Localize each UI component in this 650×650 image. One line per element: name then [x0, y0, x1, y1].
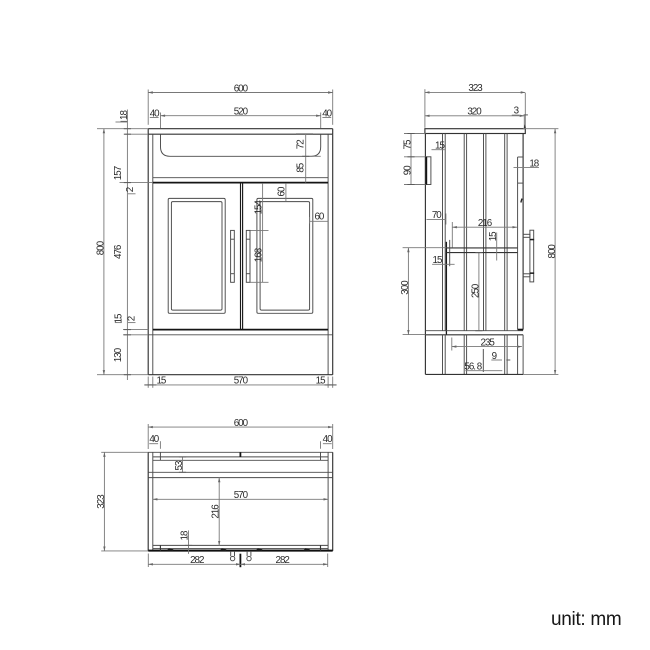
svg-text:18: 18	[179, 530, 190, 540]
svg-text:75: 75	[403, 139, 414, 149]
svg-text:90: 90	[403, 165, 414, 175]
svg-text:300: 300	[400, 280, 411, 295]
svg-text:60: 60	[314, 211, 324, 222]
svg-text:15: 15	[488, 231, 499, 241]
svg-text:520: 520	[234, 107, 249, 118]
svg-text:85: 85	[296, 162, 307, 172]
svg-text:18: 18	[529, 158, 539, 169]
svg-text:53: 53	[174, 460, 185, 470]
svg-text:154: 154	[253, 199, 264, 214]
svg-text:18: 18	[119, 110, 130, 120]
svg-text:9: 9	[492, 351, 497, 362]
svg-text:157: 157	[113, 166, 124, 180]
svg-text:15: 15	[435, 141, 445, 152]
svg-text:323: 323	[468, 83, 483, 94]
svg-text:2: 2	[126, 316, 137, 321]
svg-text:15: 15	[433, 255, 443, 266]
svg-text:323: 323	[96, 494, 107, 509]
svg-text:800: 800	[96, 240, 107, 255]
svg-text:70: 70	[432, 210, 442, 221]
svg-text:250: 250	[470, 283, 481, 298]
svg-text:15: 15	[113, 313, 124, 323]
svg-text:235: 235	[481, 337, 496, 348]
svg-text:570: 570	[234, 376, 249, 387]
svg-text:60: 60	[277, 186, 288, 196]
svg-text:282: 282	[276, 555, 290, 566]
svg-text:168: 168	[253, 247, 264, 262]
svg-text:15: 15	[316, 376, 326, 387]
svg-text:282: 282	[190, 555, 204, 566]
svg-text:216: 216	[210, 504, 221, 519]
svg-text:600: 600	[234, 83, 249, 94]
svg-text:130: 130	[113, 347, 124, 362]
svg-text:72: 72	[296, 140, 307, 149]
svg-text:unit: mm: unit: mm	[551, 609, 621, 630]
svg-text:476: 476	[113, 244, 124, 259]
svg-text:570: 570	[234, 490, 249, 501]
svg-text:320: 320	[467, 107, 482, 118]
svg-text:800: 800	[547, 244, 558, 259]
svg-text:2: 2	[125, 187, 136, 192]
svg-text:56. 8: 56. 8	[464, 362, 482, 373]
svg-text:216: 216	[478, 218, 493, 229]
svg-text:15: 15	[156, 376, 166, 387]
svg-text:600: 600	[234, 418, 249, 429]
